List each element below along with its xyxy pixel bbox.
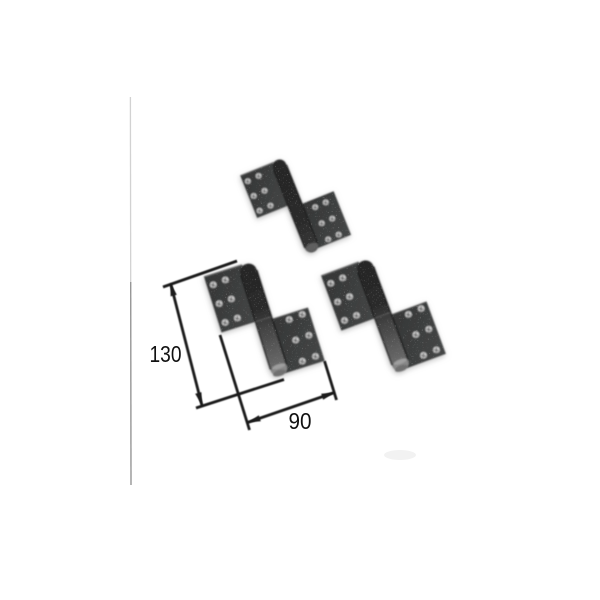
svg-text:90: 90	[289, 408, 312, 434]
svg-text:130: 130	[150, 341, 182, 367]
